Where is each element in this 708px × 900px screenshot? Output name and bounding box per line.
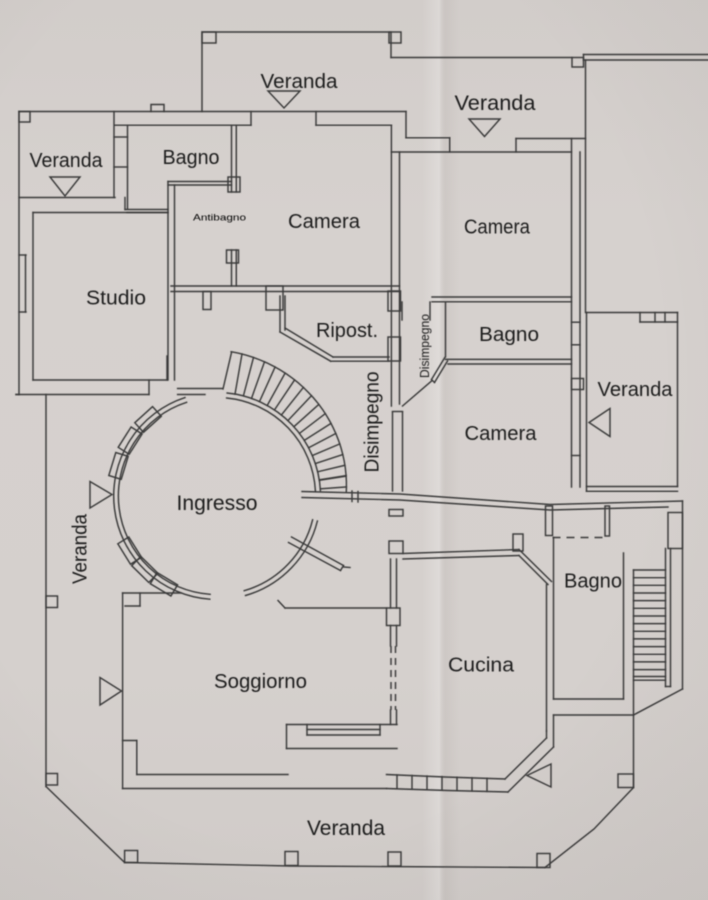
svg-text:Disimpegno: Disimpegno bbox=[362, 372, 384, 473]
svg-text:Veranda: Veranda bbox=[70, 513, 92, 584]
svg-text:Antibagno: Antibagno bbox=[193, 213, 246, 223]
svg-text:Ripost.: Ripost. bbox=[316, 320, 378, 342]
svg-text:Studio: Studio bbox=[86, 288, 146, 310]
svg-text:Camera: Camera bbox=[464, 216, 531, 239]
svg-text:Veranda: Veranda bbox=[598, 379, 674, 401]
svg-text:Bagno: Bagno bbox=[479, 324, 539, 346]
svg-text:Veranda: Veranda bbox=[261, 71, 339, 93]
svg-text:Camera: Camera bbox=[465, 422, 538, 445]
svg-text:Disimpegno: Disimpegno bbox=[417, 314, 432, 378]
svg-text:Soggiorno: Soggiorno bbox=[214, 671, 307, 693]
svg-text:Veranda: Veranda bbox=[30, 150, 104, 172]
svg-text:Camera: Camera bbox=[288, 210, 361, 233]
svg-text:Cucina: Cucina bbox=[448, 655, 515, 677]
svg-text:Veranda: Veranda bbox=[455, 92, 536, 115]
svg-text:Ingresso: Ingresso bbox=[177, 492, 258, 515]
svg-text:Bagno: Bagno bbox=[163, 147, 220, 169]
svg-text:Bagno: Bagno bbox=[564, 571, 622, 593]
svg-text:Veranda: Veranda bbox=[307, 817, 385, 840]
